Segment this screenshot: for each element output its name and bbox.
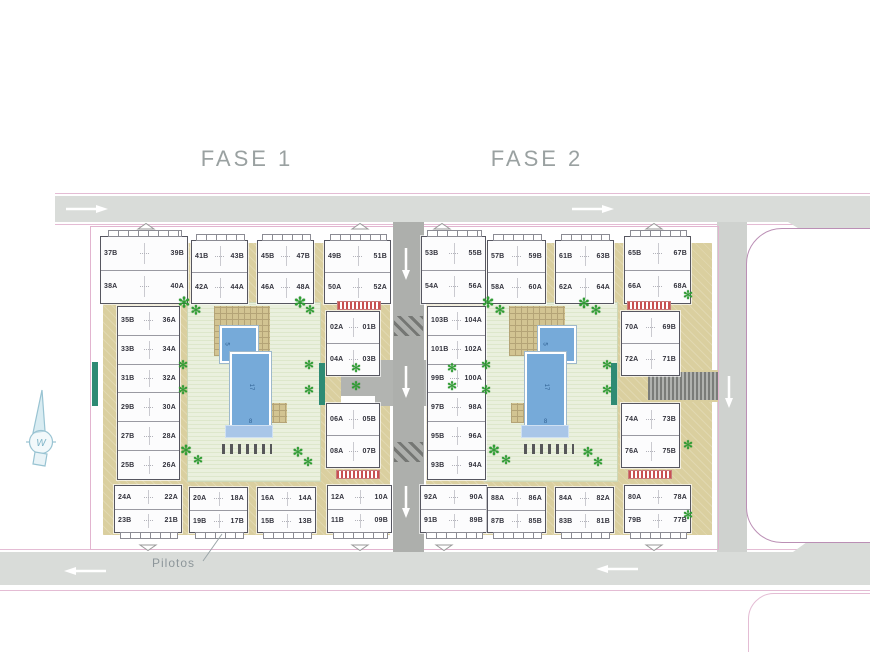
area-tick-marks: [580, 498, 589, 499]
striped-parking-marking: [628, 470, 672, 479]
unit-label-28A: 28A: [163, 433, 176, 440]
area-tick-marks: [282, 498, 291, 499]
palm-tree-icon: ✻: [488, 443, 500, 457]
unit-label-53B: 53B: [425, 250, 438, 257]
striped-parking-marking: [337, 301, 381, 310]
area-tick-marks: [646, 419, 655, 420]
area-tick-marks: [512, 498, 521, 499]
palm-tree-icon: ✻: [304, 384, 314, 396]
area-tick-marks: [452, 465, 461, 466]
unit-label-74A: 74A: [625, 416, 638, 423]
unit-label-25B: 25B: [121, 462, 134, 469]
area-tick-marks: [349, 327, 358, 328]
unit-label-60A: 60A: [529, 284, 542, 291]
unit-label-62A: 62A: [559, 284, 572, 291]
palm-tree-icon: ✻: [178, 384, 188, 396]
unit-label-96A: 96A: [469, 433, 482, 440]
unit-label-65B: 65B: [628, 250, 641, 257]
unit-label-10A: 10A: [375, 494, 388, 501]
area-tick-marks: [449, 520, 458, 521]
unit-label-19B: 19B: [193, 518, 206, 525]
area-tick-marks: [653, 520, 662, 521]
area-tick-marks: [646, 327, 655, 328]
unit-label-31B: 31B: [121, 375, 134, 382]
area-tick-marks: [512, 521, 521, 522]
unit-label-02A: 02A: [330, 324, 343, 331]
area-tick-marks: [355, 497, 364, 498]
palm-tree-icon: ✻: [481, 384, 491, 396]
area-tick-marks: [449, 253, 458, 254]
unit-label-72A: 72A: [625, 356, 638, 363]
palm-tree-icon: ✻: [180, 443, 192, 457]
unit-label-50A: 50A: [328, 284, 341, 291]
unit-label-67B: 67B: [674, 250, 687, 257]
area-tick-marks: [580, 287, 589, 288]
area-tick-marks: [353, 256, 362, 257]
area-tick-marks: [144, 407, 153, 408]
unit-label-98A: 98A: [469, 404, 482, 411]
palm-tree-icon: ✻: [482, 296, 495, 311]
unit-label-88A: 88A: [491, 495, 504, 502]
palm-tree-icon: ✻: [683, 439, 693, 451]
unit-label-84A: 84A: [559, 495, 572, 502]
unit-label-20A: 20A: [193, 495, 206, 502]
unit-label-18A: 18A: [231, 495, 244, 502]
unit-label-83B: 83B: [559, 518, 572, 525]
unit-label-90A: 90A: [470, 494, 483, 501]
unit-label-04A: 04A: [330, 356, 343, 363]
area-tick-marks: [144, 320, 153, 321]
unit-label-38A: 38A: [104, 283, 117, 290]
area-tick-marks: [580, 521, 589, 522]
area-tick-marks: [144, 378, 153, 379]
unit-label-63B: 63B: [597, 253, 610, 260]
palm-tree-icon: ✻: [602, 359, 612, 371]
unit-label-32A: 32A: [163, 375, 176, 382]
unit-label-07B: 07B: [363, 448, 376, 455]
palm-tree-icon: ✻: [683, 289, 693, 301]
unit-label-80A: 80A: [628, 494, 641, 501]
unit-label-35B: 35B: [121, 317, 134, 324]
unit-label-91B: 91B: [424, 517, 437, 524]
palm-tree-icon: ✻: [501, 454, 511, 466]
area-tick-marks: [349, 419, 358, 420]
unit-label-26A: 26A: [163, 462, 176, 469]
unit-label-45B: 45B: [261, 253, 274, 260]
area-tick-marks: [140, 253, 149, 254]
unit-label-73B: 73B: [663, 416, 676, 423]
area-tick-marks: [452, 349, 461, 350]
unit-label-103B: 103B: [431, 317, 449, 324]
unit-label-94A: 94A: [469, 462, 482, 469]
unit-label-64A: 64A: [597, 284, 610, 291]
unit-label-68A: 68A: [674, 283, 687, 290]
unit-label-82A: 82A: [597, 495, 610, 502]
unit-label-44A: 44A: [231, 284, 244, 291]
unit-label-13B: 13B: [299, 518, 312, 525]
unit-label-40A: 40A: [171, 283, 184, 290]
area-tick-marks: [452, 436, 461, 437]
palm-tree-icon: ✻: [305, 304, 315, 316]
area-tick-marks: [144, 520, 153, 521]
palm-tree-icon: ✻: [304, 359, 314, 371]
area-tick-marks: [653, 497, 662, 498]
palm-tree-icon: ✻: [495, 304, 506, 317]
unit-label-34A: 34A: [163, 346, 176, 353]
area-tick-marks: [140, 286, 149, 287]
unit-label-101B: 101B: [431, 346, 449, 353]
unit-label-92A: 92A: [424, 494, 437, 501]
unit-label-05B: 05B: [363, 416, 376, 423]
area-tick-marks: [214, 521, 223, 522]
unit-label-78A: 78A: [674, 494, 687, 501]
area-tick-marks: [349, 359, 358, 360]
area-tick-marks: [449, 497, 458, 498]
unit-label-81B: 81B: [597, 518, 610, 525]
unit-label-39B: 39B: [171, 250, 184, 257]
unit-label-75B: 75B: [663, 448, 676, 455]
unit-label-08A: 08A: [330, 448, 343, 455]
area-tick-marks: [580, 256, 589, 257]
unit-label-30A: 30A: [163, 404, 176, 411]
unit-label-09B: 09B: [375, 517, 388, 524]
area-tick-marks: [281, 256, 290, 257]
area-tick-marks: [449, 286, 458, 287]
unit-label-48A: 48A: [297, 284, 310, 291]
unit-label-23B: 23B: [118, 517, 131, 524]
area-tick-marks: [452, 407, 461, 408]
unit-label-104A: 104A: [464, 317, 482, 324]
palm-tree-icon: ✻: [293, 446, 304, 459]
unit-label-102A: 102A: [464, 346, 482, 353]
unit-label-71B: 71B: [663, 356, 676, 363]
unit-label-41B: 41B: [195, 253, 208, 260]
unit-label-43B: 43B: [231, 253, 244, 260]
unit-label-97B: 97B: [431, 404, 444, 411]
unit-label-37B: 37B: [104, 250, 117, 257]
unit-label-33B: 33B: [121, 346, 134, 353]
unit-label-12A: 12A: [331, 494, 344, 501]
unit-label-29B: 29B: [121, 404, 134, 411]
area-tick-marks: [144, 349, 153, 350]
unit-label-86A: 86A: [529, 495, 542, 502]
unit-label-16A: 16A: [261, 495, 274, 502]
area-tick-marks: [349, 451, 358, 452]
unit-label-56A: 56A: [469, 283, 482, 290]
palm-tree-icon: ✻: [591, 304, 602, 317]
unit-label-70A: 70A: [625, 324, 638, 331]
unit-label-76A: 76A: [625, 448, 638, 455]
unit-label-61B: 61B: [559, 253, 572, 260]
unit-label-52A: 52A: [374, 284, 387, 291]
pilotos-label: Pilotos: [152, 556, 195, 570]
area-tick-marks: [214, 498, 223, 499]
area-tick-marks: [355, 520, 364, 521]
unit-label-100A: 100A: [464, 375, 482, 382]
unit-label-77B: 77B: [674, 517, 687, 524]
area-tick-marks: [653, 286, 662, 287]
striped-parking-marking: [627, 301, 671, 310]
unit-label-57B: 57B: [491, 253, 504, 260]
unit-label-69B: 69B: [663, 324, 676, 331]
palm-tree-icon: ✻: [351, 380, 361, 392]
area-tick-marks: [215, 256, 224, 257]
area-tick-marks: [144, 465, 153, 466]
unit-label-59B: 59B: [529, 253, 542, 260]
striped-parking-marking: [336, 470, 380, 479]
unit-label-14A: 14A: [299, 495, 312, 502]
palm-tree-icon: ✻: [602, 384, 612, 396]
unit-label-85B: 85B: [529, 518, 542, 525]
palm-tree-icon: ✻: [447, 362, 457, 374]
unit-label-49B: 49B: [328, 253, 341, 260]
palm-tree-icon: ✻: [178, 359, 188, 371]
unit-label-93B: 93B: [431, 462, 444, 469]
unit-label-55B: 55B: [469, 250, 482, 257]
area-tick-marks: [282, 521, 291, 522]
unit-label-58A: 58A: [491, 284, 504, 291]
area-tick-marks: [646, 451, 655, 452]
unit-label-46A: 46A: [261, 284, 274, 291]
unit-label-87B: 87B: [491, 518, 504, 525]
unit-label-95B: 95B: [431, 433, 444, 440]
unit-label-01B: 01B: [363, 324, 376, 331]
unit-label-17B: 17B: [231, 518, 244, 525]
unit-label-03B: 03B: [363, 356, 376, 363]
area-tick-marks: [512, 287, 521, 288]
area-tick-marks: [452, 320, 461, 321]
unit-label-21B: 21B: [165, 517, 178, 524]
unit-label-89B: 89B: [470, 517, 483, 524]
area-tick-marks: [646, 359, 655, 360]
unit-label-54A: 54A: [425, 283, 438, 290]
unit-label-22A: 22A: [165, 494, 178, 501]
palm-tree-icon: ✻: [583, 446, 594, 459]
unit-label-27B: 27B: [121, 433, 134, 440]
unit-label-66A: 66A: [628, 283, 641, 290]
unit-label-15B: 15B: [261, 518, 274, 525]
palm-tree-icon: ✻: [303, 456, 313, 468]
palm-tree-icon: ✻: [191, 304, 202, 317]
palm-tree-icon: ✻: [193, 454, 203, 466]
vegetation-layer: ✻✻✻✻✻✻✻✻✻✻✻✻✻✻✻✻✻✻✻✻✻✻✻✻✻✻✻✻✻✻✻: [0, 0, 870, 652]
palm-tree-icon: ✻: [351, 362, 361, 374]
area-tick-marks: [512, 256, 521, 257]
site-plan-canvas: FASE 1 FASE 2 5 17 8 5: [0, 0, 870, 652]
unit-label-06A: 06A: [330, 416, 343, 423]
area-tick-marks: [144, 497, 153, 498]
area-tick-marks: [450, 378, 459, 379]
palm-tree-icon: ✻: [578, 296, 590, 310]
area-tick-marks: [353, 287, 362, 288]
unit-label-79B: 79B: [628, 517, 641, 524]
palm-tree-icon: ✻: [178, 296, 191, 311]
area-tick-marks: [281, 287, 290, 288]
unit-label-51B: 51B: [374, 253, 387, 260]
unit-label-36A: 36A: [163, 317, 176, 324]
unit-label-99B: 99B: [431, 375, 444, 382]
area-tick-marks: [653, 253, 662, 254]
unit-label-42A: 42A: [195, 284, 208, 291]
unit-label-24A: 24A: [118, 494, 131, 501]
area-tick-marks: [144, 436, 153, 437]
palm-tree-icon: ✻: [481, 359, 491, 371]
palm-tree-icon: ✻: [593, 456, 603, 468]
unit-label-47B: 47B: [297, 253, 310, 260]
area-tick-marks: [215, 287, 224, 288]
palm-tree-icon: ✻: [447, 380, 457, 392]
unit-label-11B: 11B: [331, 517, 344, 524]
